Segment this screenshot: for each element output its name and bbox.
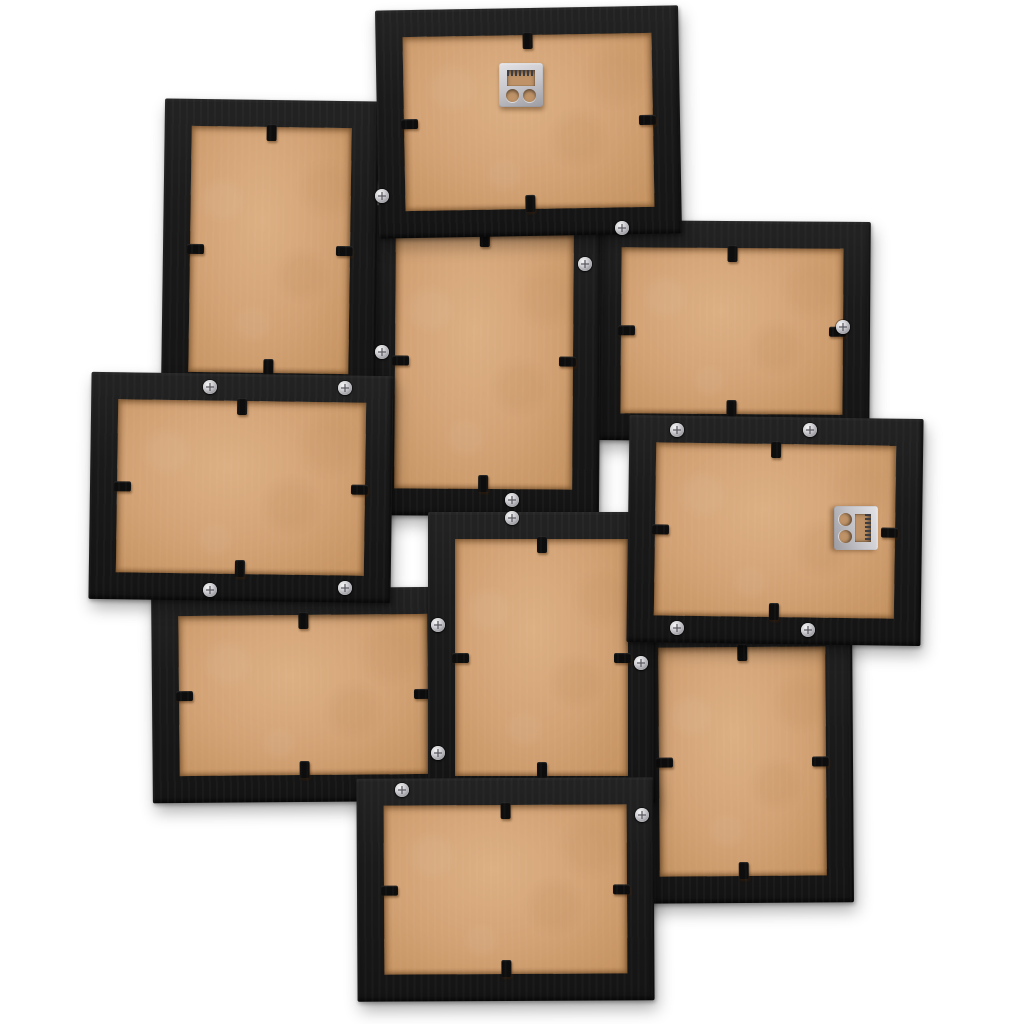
hanger-hole [839, 513, 852, 526]
swivel-tab [267, 124, 277, 141]
swivel-tab [812, 756, 829, 766]
assembly-screw [338, 381, 352, 395]
swivel-tab [298, 612, 308, 629]
swivel-tab [613, 884, 630, 894]
swivel-tab [478, 475, 488, 492]
mdf-back-panel [620, 247, 843, 415]
swivel-tab [525, 195, 535, 212]
swivel-tab [639, 115, 656, 125]
swivel-tab [737, 644, 747, 661]
swivel-tab [652, 524, 669, 534]
assembly-screw [395, 783, 409, 797]
photo-frame-back [626, 415, 923, 646]
mdf-back-panel [403, 33, 655, 211]
collage-frame-back-photo [0, 0, 1024, 1024]
photo-frame-back [428, 512, 655, 803]
assembly-screw [803, 423, 817, 437]
photo-frame-back [88, 372, 393, 603]
swivel-tab [881, 527, 898, 537]
assembly-screw [670, 621, 684, 635]
assembly-screw [338, 581, 352, 595]
mdf-back-panel [394, 232, 574, 489]
photo-frame-back [161, 99, 379, 402]
swivel-tab [392, 355, 409, 365]
mdf-back-panel [658, 646, 827, 876]
assembly-screw [375, 345, 389, 359]
photo-frame-back [375, 5, 682, 238]
hanger-plate [834, 506, 878, 550]
assembly-screw [203, 380, 217, 394]
mdf-back-panel [188, 126, 351, 374]
sawtooth-hanger [499, 63, 543, 107]
swivel-tab [537, 762, 547, 779]
swivel-tab [738, 862, 748, 879]
hanger-sawtooth-teeth [507, 70, 535, 76]
photo-frame-back [593, 220, 871, 442]
assembly-screw [801, 623, 815, 637]
photo-frame-back [367, 205, 601, 517]
swivel-tab [381, 885, 398, 895]
swivel-tab [114, 481, 131, 491]
swivel-tab [500, 802, 510, 819]
assembly-screw [836, 320, 850, 334]
assembly-screw [203, 583, 217, 597]
swivel-tab [351, 484, 368, 494]
swivel-tab [656, 757, 673, 767]
photo-frame-back [356, 777, 654, 1002]
assembly-screw [635, 808, 649, 822]
assembly-screw [615, 221, 629, 235]
photo-frame-back [151, 587, 456, 804]
swivel-tab [237, 398, 247, 415]
swivel-tab [299, 761, 309, 778]
swivel-tab [501, 960, 511, 977]
swivel-tab [522, 32, 532, 49]
hanger-hole [506, 89, 519, 102]
assembly-screw [578, 257, 592, 271]
swivel-tab [726, 400, 736, 417]
swivel-tab [176, 691, 193, 701]
mdf-back-panel [178, 614, 428, 776]
swivel-tab [187, 244, 204, 254]
swivel-tab [336, 246, 353, 256]
swivel-tab [727, 245, 737, 262]
assembly-screw [670, 423, 684, 437]
swivel-tab [614, 653, 631, 663]
swivel-tab [618, 325, 635, 335]
assembly-screw [634, 656, 648, 670]
swivel-tab [235, 560, 245, 577]
swivel-tab [769, 603, 779, 620]
assembly-screw [431, 618, 445, 632]
hanger-slot [855, 514, 871, 542]
hanger-hole [523, 89, 536, 102]
swivel-tab [452, 653, 469, 663]
sawtooth-hanger [834, 506, 878, 550]
assembly-screw [505, 493, 519, 507]
hanger-sawtooth-teeth [865, 514, 871, 542]
hanger-hole [839, 530, 852, 543]
assembly-screw [505, 511, 519, 525]
assembly-screw [431, 746, 445, 760]
swivel-tab [771, 441, 781, 458]
hanger-slot [507, 70, 535, 86]
mdf-back-panel [455, 539, 628, 776]
swivel-tab [559, 357, 576, 367]
photo-frame-back [631, 619, 854, 904]
mdf-back-panel [116, 399, 366, 575]
hanger-plate [499, 63, 543, 107]
swivel-tab [537, 536, 547, 553]
mdf-back-panel [384, 804, 628, 974]
swivel-tab [401, 119, 418, 129]
assembly-screw [375, 189, 389, 203]
